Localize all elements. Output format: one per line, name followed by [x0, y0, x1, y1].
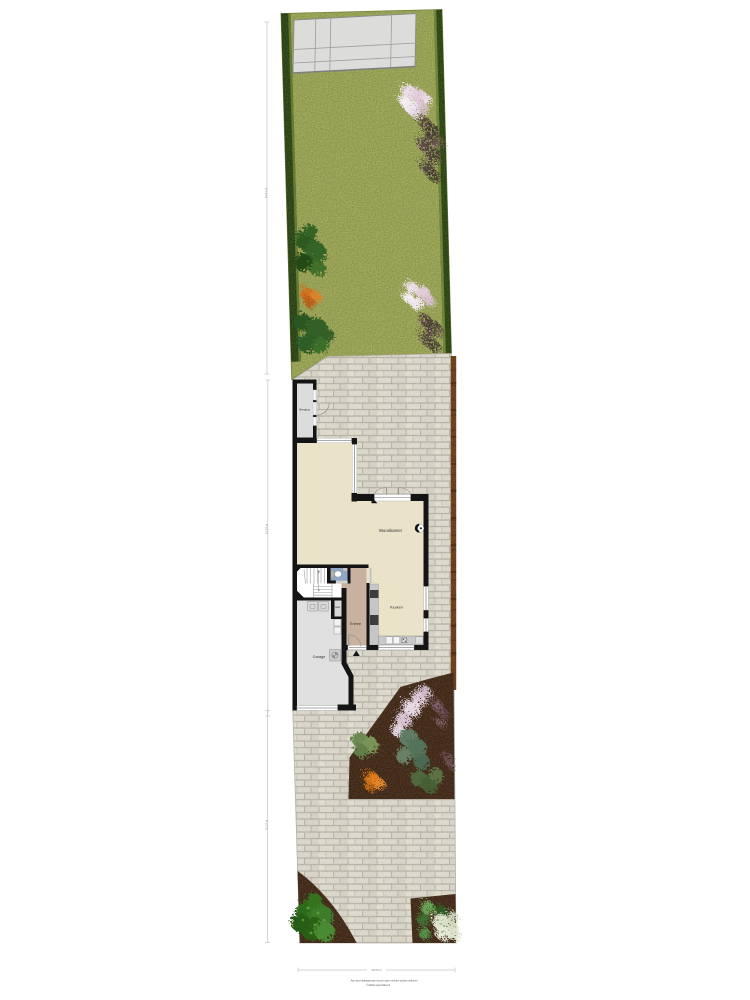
svg-text:Entree: Entree	[350, 622, 361, 626]
svg-text:23.41 m: 23.41 m	[264, 187, 268, 198]
svg-text:© Zlabel www.zlabel.nl: © Zlabel www.zlabel.nl	[366, 984, 391, 987]
svg-text:21.54 m: 21.54 m	[265, 523, 269, 534]
svg-text:Aan deze plattegronden kunnen: Aan deze plattegronden kunnen geen recht…	[351, 980, 419, 983]
svg-text:Keuken: Keuken	[390, 606, 403, 610]
svg-text:Kast: Kast	[334, 605, 340, 609]
svg-text:Woonkamer: Woonkamer	[379, 528, 403, 533]
svg-text:10.20 m: 10.20 m	[371, 968, 382, 972]
svg-text:Berging: Berging	[299, 408, 310, 412]
svg-text:15.37 m: 15.37 m	[264, 819, 268, 830]
svg-text:Garage: Garage	[313, 655, 326, 659]
